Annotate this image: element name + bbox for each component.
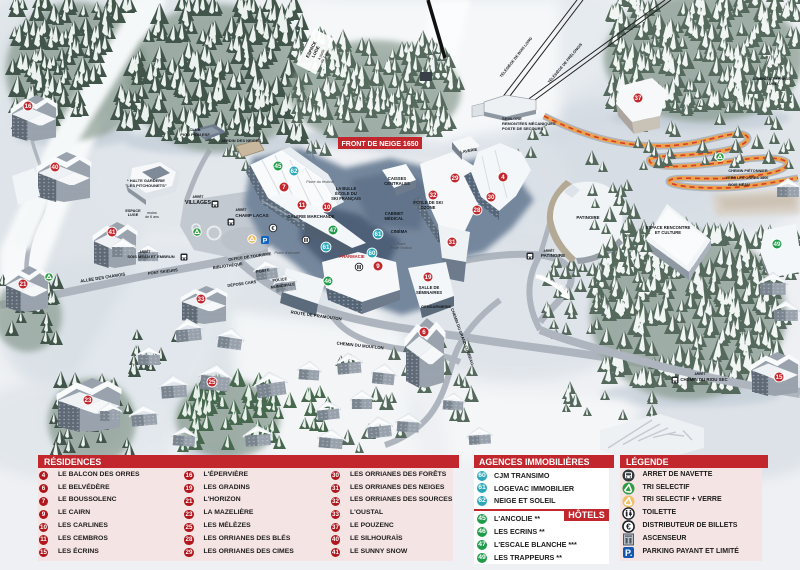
svg-text:SOIS MEAN ET EMBRUN: SOIS MEAN ET EMBRUN [127,254,174,259]
svg-text:7: 7 [282,184,286,191]
svg-text:Emile Hodoul: Emile Hodoul [390,246,412,250]
svg-text:CENTRALES: CENTRALES [384,181,410,186]
svg-text:GALERIE MARCHANDE: GALERIE MARCHANDE [287,214,334,219]
svg-text:6: 6 [422,329,426,336]
svg-text:37: 37 [635,95,642,102]
svg-text:30: 30 [488,194,495,201]
svg-text:P: P [263,238,268,245]
svg-text:41: 41 [109,229,116,236]
svg-text:de 6 ans: de 6 ans [145,215,159,219]
svg-text:28: 28 [474,207,481,214]
svg-text:49: 49 [774,241,781,248]
svg-text:PATINOIRE: PATINOIRE [541,253,565,258]
svg-text:SÉMINAIRES: SÉMINAIRES [416,290,442,295]
svg-text:ARRÊT: ARRÊT [695,371,706,376]
svg-text:P.: P. [625,548,632,558]
svg-text:VILLAGES: VILLAGES [185,200,211,206]
svg-text:"LES PITCHOUNETS": "LES PITCHOUNETS" [125,183,166,188]
svg-text:62: 62 [291,168,298,175]
svg-text:23: 23 [85,397,92,404]
svg-text:MÉDICAL: MÉDICAL [384,216,404,221]
svg-text:40: 40 [52,164,59,171]
svg-text:9: 9 [376,263,380,270]
svg-text:GENDARMERIE: GENDARMERIE [421,304,451,309]
svg-text:16: 16 [25,103,32,110]
svg-text:CHEMIN DU RIOU SEC: CHEMIN DU RIOU SEC [680,377,728,382]
svg-text:31: 31 [449,239,456,246]
svg-text:46: 46 [325,278,332,285]
svg-text:PIOU PIOU ESF: PIOU PIOU ESF [180,132,210,137]
svg-text:ARRÊT: ARRÊT [544,248,555,253]
svg-text:LUGE: LUGE [767,82,778,86]
svg-text:21: 21 [20,281,27,288]
svg-text:11: 11 [299,202,306,209]
svg-text:Place d'accueil: Place d'accueil [274,251,299,255]
svg-text:19: 19 [425,274,432,281]
svg-text:POSTE DE SECOURS: POSTE DE SECOURS [502,126,543,131]
svg-text:61: 61 [375,231,382,238]
svg-text:ARRÊT: ARRÊT [193,194,204,199]
svg-text:ET CULTURE: ET CULTURE [655,230,681,235]
svg-text:CINÉMA: CINÉMA [391,229,408,234]
svg-text:4: 4 [501,174,505,181]
svg-text:VERS LES ORRES 1800: VERS LES ORRES 1800 [726,176,769,180]
svg-text:Place du festival: Place du festival [306,180,334,184]
svg-text:CHEMIN PIÉTONNIER: CHEMIN PIÉTONNIER [728,168,767,173]
svg-text:LUGE: LUGE [128,213,139,217]
svg-text:61: 61 [323,244,330,251]
svg-text:60: 60 [369,250,376,257]
svg-text:32: 32 [430,192,437,199]
svg-text:33: 33 [198,296,205,303]
svg-text:45: 45 [275,163,282,170]
svg-text:OZONE: OZONE [421,205,436,210]
svg-text:25: 25 [209,379,216,386]
svg-text:€: € [626,522,631,532]
svg-text:BOIS MÉAN: BOIS MÉAN [728,182,750,187]
svg-text:ARRÊT: ARRÊT [236,207,247,212]
svg-text:15: 15 [776,374,783,381]
svg-text:JARDIN DES NEIGES: JARDIN DES NEIGES [221,138,262,143]
svg-text:PATINOIRE: PATINOIRE [576,215,599,220]
svg-text:ARRÊT: ARRÊT [140,249,151,254]
svg-text:FRONT DE NEIGE 1650: FRONT DE NEIGE 1650 [341,141,418,148]
svg-text:29: 29 [452,175,459,182]
svg-text:CHAMP LACAS: CHAMP LACAS [235,213,268,218]
svg-text:PHARMACIE: PHARMACIE [339,254,365,259]
svg-text:L'ORRIAN EXPRESS: L'ORRIAN EXPRESS [753,77,791,81]
svg-text:47: 47 [330,227,337,234]
svg-text:SKI FRANÇAIS: SKI FRANÇAIS [331,196,361,201]
svg-text:10: 10 [324,204,331,211]
